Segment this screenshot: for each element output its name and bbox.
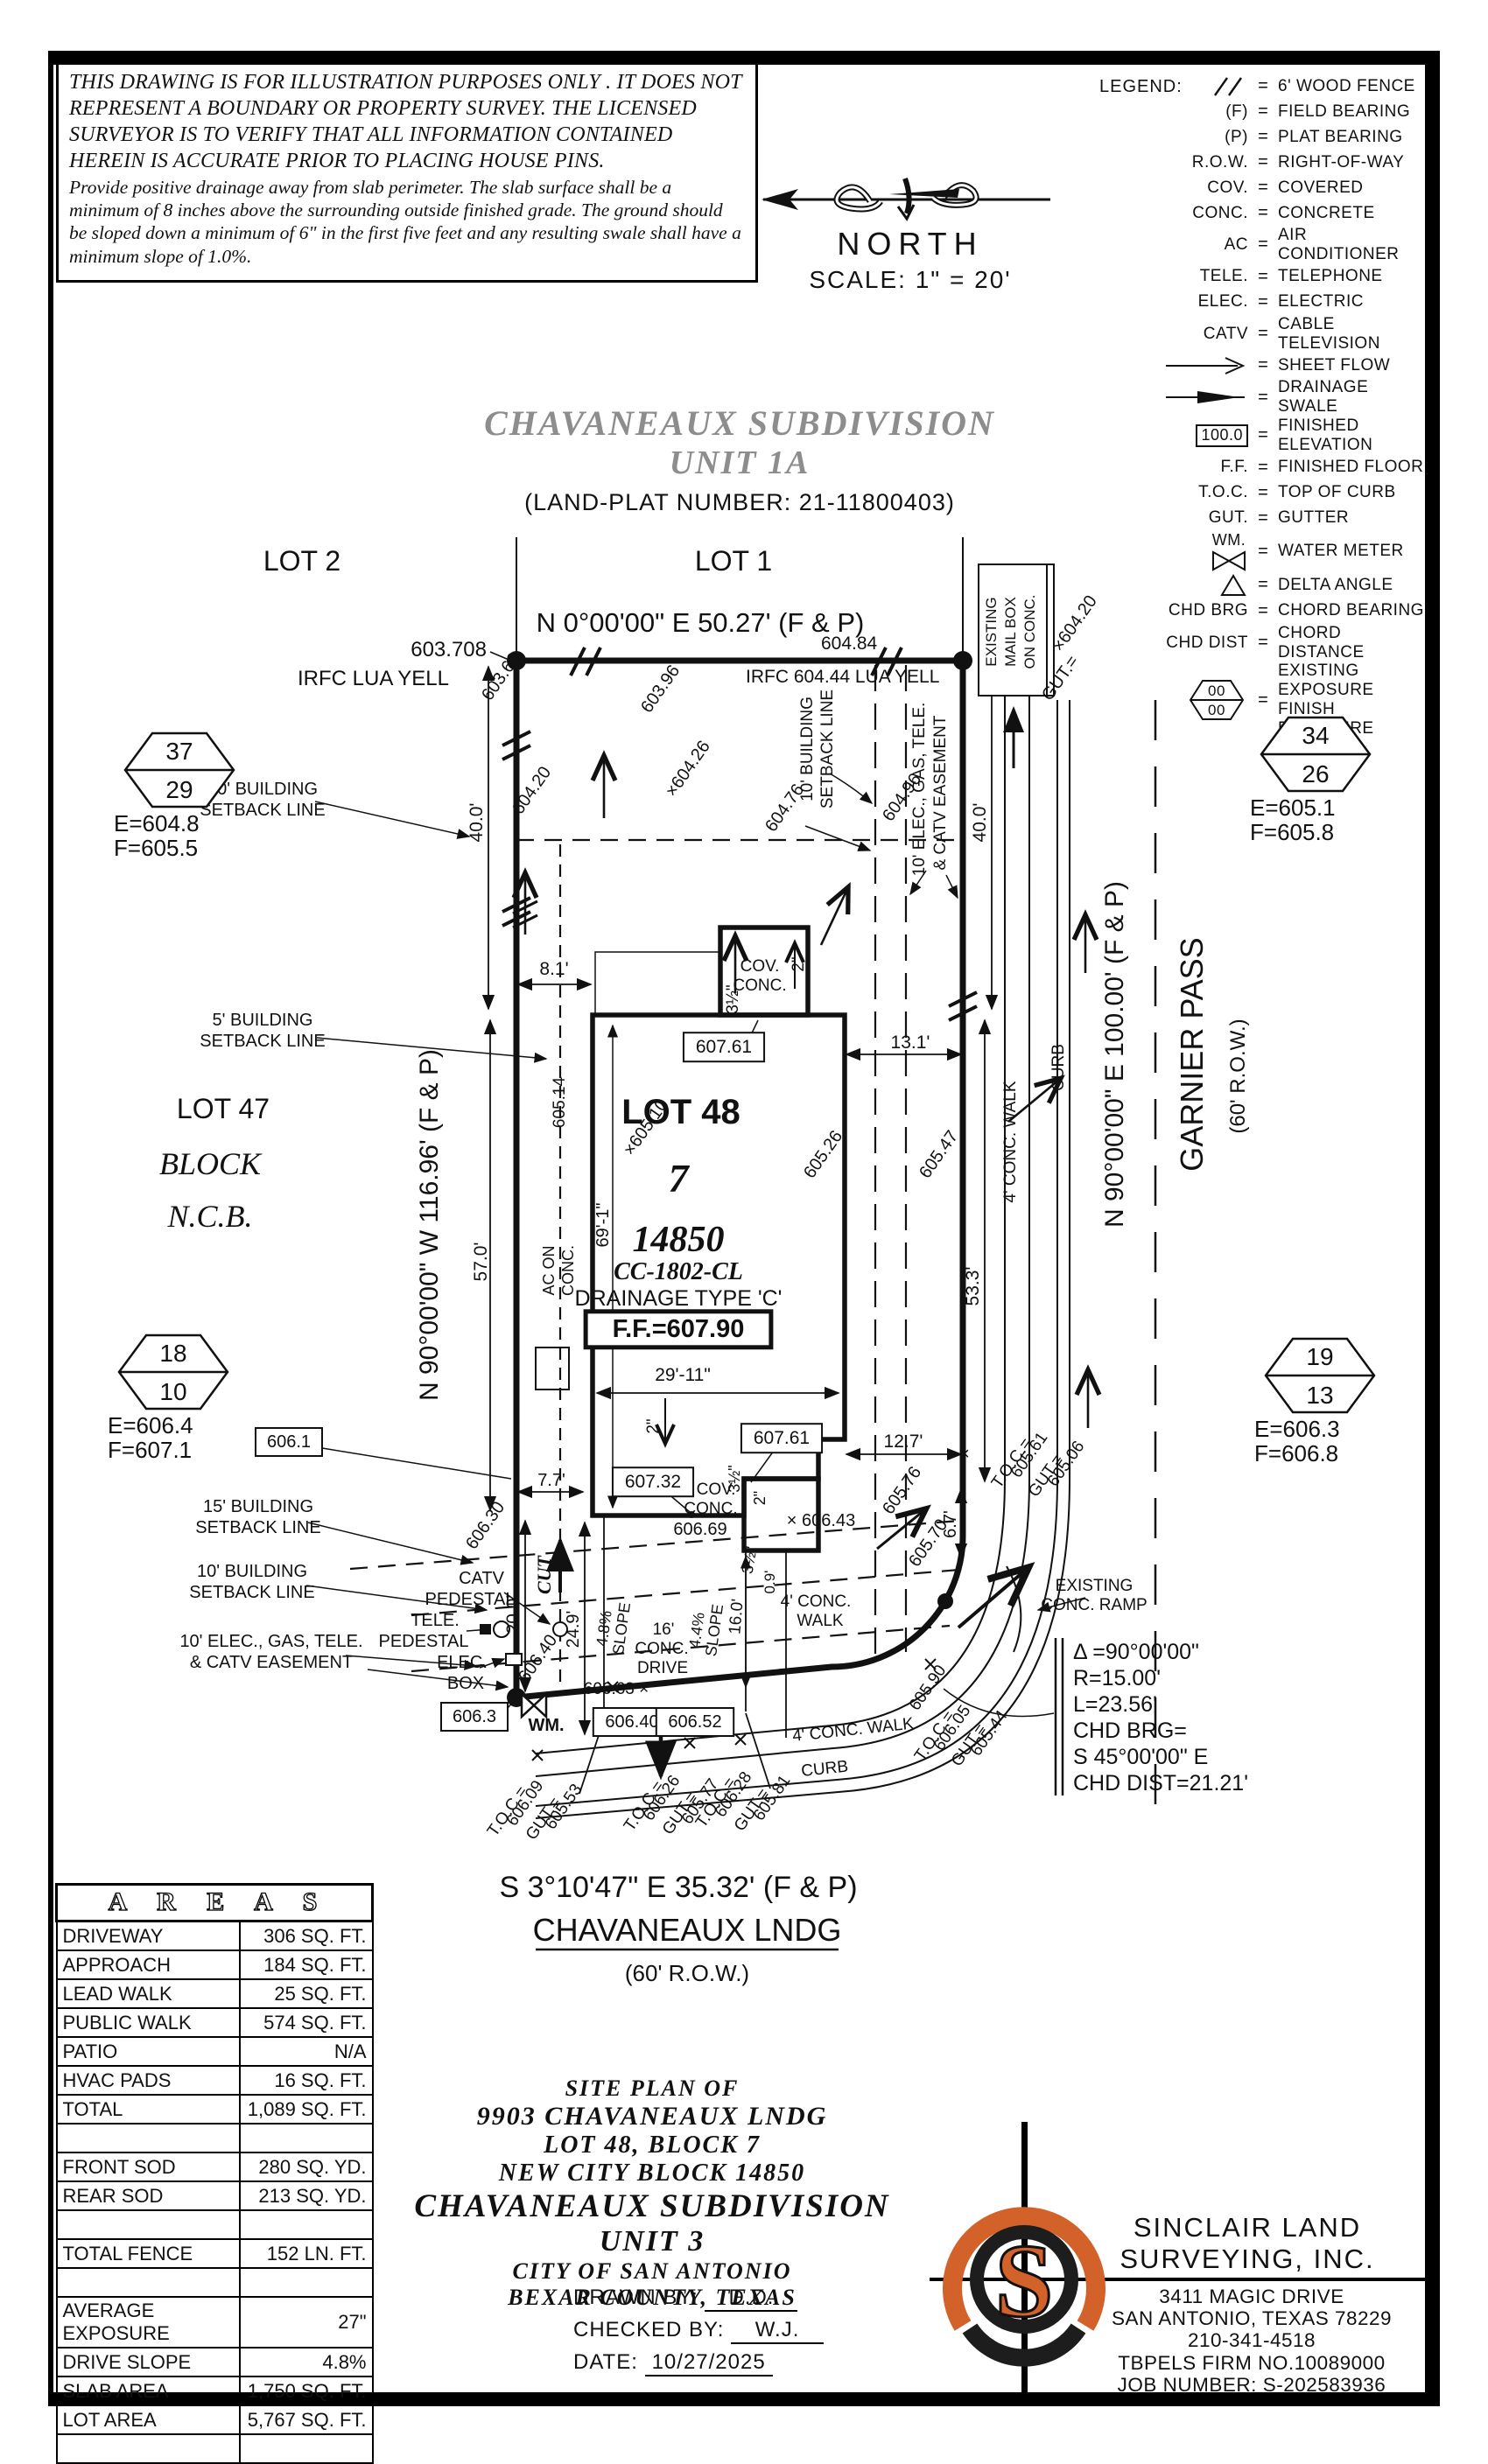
job-number: JOB NUMBER: S-202583936 — [1085, 2374, 1418, 2396]
date-label: DATE: — [573, 2350, 638, 2374]
north-label: NORTH — [758, 226, 1063, 262]
dim-24-9: 24.9' — [564, 1611, 583, 1648]
areas-row — [57, 2268, 373, 2297]
curb-bottom-label: CURB — [800, 1757, 849, 1781]
dim-3half-front: 3½" — [739, 1545, 761, 1575]
drawn-by-row: DRAWN BY: D.D. — [573, 2285, 871, 2312]
slope-44-2: SLOPE — [702, 1603, 726, 1657]
areas-row-label — [57, 2124, 240, 2152]
hex-34-26: 3426E=605.1F=605.8 — [1250, 717, 1370, 845]
legend-catv-desc: CABLE TELEVISION — [1278, 315, 1432, 353]
dim-29-11: 29'-11" — [655, 1365, 711, 1385]
dim-2in-front: 2" — [751, 1491, 769, 1505]
firm-address1: 3411 MAGIC DRIVE — [1085, 2285, 1418, 2307]
hex-19-13-existing: 19 — [1306, 1343, 1333, 1370]
legend-conc: CONC.=CONCRETE — [1164, 200, 1432, 226]
areas-row-value: 16 SQ. FT. — [240, 2066, 373, 2095]
hex-37-29-e-value: E=604.8 — [114, 810, 200, 836]
elevbox-60732: 607.32 — [625, 1472, 681, 1492]
dim-57-0: 57.0' — [471, 1242, 491, 1282]
date-value: 10/27/2025 — [645, 2350, 773, 2376]
areas-row-value — [240, 2268, 373, 2297]
areas-row-label: SLAB AREA — [57, 2376, 240, 2405]
equals-sign: = — [1248, 355, 1278, 375]
firm-name: SINCLAIR LAND SURVEYING, INC. — [1085, 2212, 1409, 2274]
titleblock-line-1: 9903 CHAVANEAUX LNDG — [407, 2102, 897, 2131]
hex-34-26-existing: 34 — [1302, 722, 1329, 749]
titleblock-line-0: SITE PLAN OF — [407, 2075, 897, 2102]
areas-row: LOT AREA5,767 SQ. FT. — [57, 2405, 373, 2434]
chavaneaux-row: (60' R.O.W.) — [625, 1960, 749, 1986]
setback15-label2: SETBACK LINE — [195, 1518, 320, 1537]
dim-13-1: 13.1' — [891, 1032, 930, 1053]
disclaimer-para1: THIS DRAWING IS FOR ILLUSTRATION PURPOSE… — [69, 69, 745, 174]
legend-elec: ELEC.=ELECTRIC — [1164, 290, 1432, 315]
titleblock-line-2: LOT 48, BLOCK 7 — [407, 2131, 897, 2159]
elec-label1: ELEC. — [437, 1653, 488, 1672]
dim-6-7: 6.7' — [941, 1510, 960, 1538]
dim-0-9: 0.9' — [762, 1571, 778, 1594]
legend-drainage-swale-desc: DRAINAGE SWALE — [1278, 378, 1432, 416]
equals-sign: = — [1248, 76, 1278, 96]
areas-row — [57, 2124, 373, 2152]
hex-18-10-e-value: E=606.4 — [108, 1412, 193, 1438]
cov-conc-front1: COV. — [697, 1480, 736, 1499]
hex-34-26-f-value: F=605.8 — [1250, 819, 1334, 845]
equals-sign: = — [1248, 178, 1278, 198]
legend-row-symbol: R.O.W. — [1164, 153, 1248, 172]
legend-ac: AC=AIR CONDITIONER — [1164, 226, 1432, 264]
finished-floor: F.F.=607.90 — [613, 1315, 745, 1343]
lot2-label: LOT 2 — [263, 545, 340, 577]
areas-row-label — [57, 2210, 240, 2239]
tele-label1: TELE. — [411, 1611, 460, 1630]
legend-row: R.O.W.=RIGHT-OF-WAY — [1164, 150, 1432, 175]
ac-label2: CONC. — [559, 1245, 577, 1296]
mailbox-line1: EXISTING — [983, 597, 1000, 666]
legend-cov: COV.=COVERED — [1164, 175, 1432, 200]
hex-37-29-f-value: F=605.5 — [114, 835, 198, 861]
areas-row-value — [240, 2124, 373, 2152]
elev-x60420-ne: ×604.20 — [1049, 592, 1101, 655]
areas-row-value: 25 SQ. FT. — [240, 1979, 373, 2008]
areas-row: APPROACH184 SQ. FT. — [57, 1950, 373, 1979]
elev-60526: 605.26 — [800, 1127, 846, 1182]
legend-toc-desc: TOP OF CURB — [1278, 483, 1432, 502]
hex-37-29-finish: 29 — [165, 776, 193, 803]
drive-label1: 16' — [653, 1620, 675, 1639]
legend-ff-desc: FINISHED FLOOR — [1278, 458, 1432, 477]
easement-l-label2: & CATV EASEMENT — [190, 1653, 353, 1672]
bearing-south: S 3°10'47" E 35.32' (F & P) — [499, 1871, 857, 1904]
north-arrow-icon — [758, 175, 1056, 224]
areas-row-label — [57, 2268, 240, 2297]
setback10l-label2: SETBACK LINE — [189, 1583, 314, 1602]
areas-row-value: 4.8% — [240, 2348, 373, 2376]
legend-drainage-swale: =DRAINAGE SWALE — [1164, 378, 1432, 416]
elev-60576: 605.76 — [879, 1463, 925, 1518]
equals-sign: = — [1248, 152, 1278, 172]
north-block: NORTH SCALE: 1" = 20' — [758, 175, 1063, 294]
equals-sign: = — [1248, 203, 1278, 223]
walk-mid-label2: WALK — [797, 1612, 843, 1630]
dim-16-0: 16.0' — [726, 1598, 747, 1634]
areas-row-label: PATIO — [57, 2037, 240, 2066]
date-row: DATE: 10/27/2025 — [573, 2350, 871, 2376]
cov-conc-rear1: COV. — [740, 957, 780, 976]
dim-53-3: 53.3' — [963, 1267, 983, 1306]
lot1-label: LOT 1 — [695, 545, 772, 577]
tele-label2: PEDESTAL — [379, 1632, 469, 1651]
elev-60547: 605.47 — [916, 1127, 962, 1182]
areas-row-label: DRIVEWAY — [57, 1921, 240, 1951]
elevbox-60640: 606.40 — [605, 1712, 658, 1732]
firm-address: 3411 MAGIC DRIVE SAN ANTONIO, TEXAS 7822… — [1085, 2285, 1418, 2396]
legend-ac-desc: AIR CONDITIONER — [1278, 226, 1432, 264]
areas-row: FRONT SOD280 SQ. YD. — [57, 2152, 373, 2181]
bearing-north-top: N 0°00'00" E 50.27' (F & P) — [537, 607, 865, 638]
walk-right-label: 4' CONC. WALK — [1001, 1081, 1020, 1202]
drainage-type: DRAINAGE TYPE 'C' — [575, 1286, 783, 1311]
street-chavaneaux: CHAVANEAUX LNDG — [533, 1912, 842, 1948]
subdivision-unit: UNIT 1A — [483, 444, 996, 482]
hex-19-13: 1913E=606.3F=606.8 — [1254, 1339, 1374, 1466]
irfc-right: IRFC 604.44 LUA YELL — [746, 667, 939, 687]
bearing-east: N 90°00'00" E 100.00' (F & P) — [1100, 881, 1129, 1228]
elevbox-60761-a: 607.61 — [696, 1037, 752, 1057]
areas-row-label: FRONT SOD — [57, 2152, 240, 2181]
legend-fence: =6' WOOD FENCE — [1164, 73, 1432, 99]
ncb-number: 14850 — [633, 1220, 725, 1260]
legend-conc-desc: CONCRETE — [1278, 204, 1432, 223]
survey-sheet: { "colors": {"accent":"#D2622A","title_g… — [0, 0, 1488, 2450]
x-mark-right: × — [959, 1445, 970, 1464]
equals-sign: = — [1248, 234, 1278, 255]
equals-sign: = — [1248, 292, 1278, 312]
curb-right-label: CURB — [1049, 1044, 1068, 1091]
setback20-label2: SETBACK LINE — [200, 801, 325, 820]
wm-label: WM. — [528, 1716, 564, 1735]
elec-label2: BOX — [447, 1674, 484, 1693]
legend-tele-desc: TELEPHONE — [1278, 267, 1432, 286]
hex-18-10-existing: 18 — [159, 1340, 186, 1367]
areas-row-value: 574 SQ. FT. — [240, 2008, 373, 2037]
areas-title: A R E A S — [57, 1885, 373, 1921]
areas-row-value: 280 SQ. YD. — [240, 2152, 373, 2181]
garnier-row: (60' R.O.W.) — [1226, 1018, 1250, 1133]
legend-ac-symbol: AC — [1164, 235, 1248, 255]
catv-label1: CATV — [459, 1569, 505, 1588]
equals-sign: = — [1248, 425, 1278, 445]
equals-sign: = — [1248, 388, 1278, 408]
areas-row-label: LOT AREA — [57, 2405, 240, 2434]
mailbox-line2: MAIL BOX — [1002, 597, 1019, 667]
areas-row-label: REAR SOD — [57, 2181, 240, 2210]
walk-mid-label1: 4' CONC. — [781, 1592, 852, 1611]
areas-row — [57, 2210, 373, 2239]
areas-row-label: TOTAL FENCE — [57, 2239, 240, 2268]
areas-row: PATION/A — [57, 2037, 373, 2066]
legend-tele: TELE.=TELEPHONE — [1164, 264, 1432, 290]
dim-7-7: 7.7' — [537, 1471, 565, 1490]
firm-name-line1: SINCLAIR LAND — [1085, 2212, 1409, 2243]
areas-row — [57, 2434, 373, 2463]
equals-sign: = — [1248, 324, 1278, 344]
titleblock-lines: SITE PLAN OF9903 CHAVANEAUX LNDGLOT 48, … — [407, 2075, 897, 2311]
equals-sign: = — [1248, 267, 1278, 287]
areas-row-label: TOTAL — [57, 2095, 240, 2124]
slope-48-2: SLOPE — [609, 1601, 634, 1655]
setback15-label1: 15' BUILDING — [203, 1497, 313, 1516]
dim-2in-mid: 2" — [644, 1418, 663, 1433]
checked-by-value: W.J. — [731, 2318, 824, 2344]
mailbox-line3: ON CONC. — [1021, 595, 1038, 669]
bearing-west: N 90°00'00" W 116.96' (F & P) — [415, 1049, 444, 1401]
firm-number: TBPELS FIRM NO.10089000 — [1085, 2352, 1418, 2374]
setback10r-label2: SETBACK LINE — [818, 689, 837, 808]
legend-elec-desc: ELECTRIC — [1278, 292, 1432, 311]
areas-row-value: 1,750 SQ. FT. — [240, 2376, 373, 2405]
sheet: THIS DRAWING IS FOR ILLUSTRATION PURPOSE… — [0, 0, 1488, 2450]
titleblock-line-4: CHAVANEAUX SUBDIVISION — [407, 2187, 897, 2225]
legend-catv-symbol: CATV — [1164, 325, 1248, 344]
areas-row: TOTAL1,089 SQ. FT. — [57, 2095, 373, 2124]
curve-chd-brg-label: CHD BRG= — [1073, 1718, 1187, 1743]
areas-row: PUBLIC WALK574 SQ. FT. — [57, 2008, 373, 2037]
dim-69-1: 69'-1" — [593, 1203, 613, 1248]
legend-fence-desc: 6' WOOD FENCE — [1278, 77, 1432, 96]
legend-field-bearing-symbol: (F) — [1164, 102, 1248, 122]
firm-address2: SAN ANTONIO, TEXAS 78229 — [1085, 2307, 1418, 2329]
legend-ff-symbol: F.F. — [1164, 458, 1248, 477]
elev-60590: 605.90 — [906, 1662, 951, 1714]
areas-row: TOTAL FENCE152 LN. FT. — [57, 2239, 373, 2268]
legend-drainage-swale-symbol — [1164, 388, 1248, 407]
street-garnier: GARNIER PASS — [1174, 937, 1210, 1171]
legend-ff: F.F.=FINISHED FLOOR — [1164, 455, 1432, 480]
areas-row: SLAB AREA1,750 SQ. FT. — [57, 2376, 373, 2405]
easement-r-label2: & CATV EASEMENT — [931, 715, 950, 870]
elevbox-60761-b: 607.61 — [754, 1428, 810, 1448]
dim-12-7: 12.7' — [884, 1431, 923, 1452]
cut-label: CUT — [533, 1554, 555, 1594]
areas-row: LEAD WALK25 SQ. FT. — [57, 1979, 373, 2008]
areas-row-value: 184 SQ. FT. — [240, 1950, 373, 1979]
checked-by-row: CHECKED BY: W.J. — [573, 2318, 871, 2344]
block-label: BLOCK — [159, 1146, 263, 1181]
legend-finished-elevation: 100.0=FINISHED ELEVATION — [1164, 416, 1432, 455]
elev-60669: 606.69 — [673, 1520, 726, 1539]
elev-60630: 606.30 — [462, 1498, 509, 1553]
areas-row: HVAC PADS16 SQ. FT. — [57, 2066, 373, 2095]
legend-catv: CATV=CABLE TELEVISION — [1164, 315, 1432, 353]
elev-x60643: × 606.43 — [787, 1511, 855, 1530]
setback5-label2: SETBACK LINE — [200, 1032, 325, 1051]
legend-cov-symbol: COV. — [1164, 178, 1248, 198]
plan-labels: LOT 2LOT 1N 0°00'00" E 50.27' (F & P)603… — [108, 545, 1374, 1986]
curve-chd-dist: CHD DIST=21.21' — [1073, 1771, 1248, 1795]
titleblock-line-6: CITY OF SAN ANTONIO — [407, 2258, 897, 2285]
elev-603708: 603.708 — [411, 638, 487, 661]
equals-sign: = — [1248, 458, 1278, 478]
equals-sign: = — [1248, 101, 1278, 122]
areas-row-label: AVERAGE EXPOSURE — [57, 2297, 240, 2348]
areas-row-label — [57, 2434, 240, 2463]
irfc-left: IRFC LUA YELL — [298, 667, 449, 690]
legend-plat-bearing-symbol: (P) — [1164, 128, 1248, 147]
legend-sheet-flow-symbol — [1164, 356, 1248, 375]
setback5-label1: 5' BUILDING — [213, 1011, 313, 1030]
legend-cov-desc: COVERED — [1278, 178, 1432, 198]
lot47-label: LOT 47 — [177, 1093, 270, 1124]
hex-18-10-finish: 10 — [159, 1378, 186, 1405]
hex-19-13-e-value: E=606.3 — [1254, 1416, 1340, 1442]
elevbox-6063: 606.3 — [453, 1707, 496, 1726]
easement-r-label1: 10' ELEC., GAS, TELE. — [910, 703, 929, 877]
areas-row-value: 306 SQ. FT. — [240, 1921, 373, 1951]
areas-row-label: DRIVE SLOPE — [57, 2348, 240, 2376]
curve-delta: Δ =90°00'00" — [1073, 1640, 1199, 1664]
legend-finished-elevation-symbol: 100.0 — [1164, 424, 1248, 447]
areas-row-value — [240, 2210, 373, 2239]
land-plat-number: (LAND-PLAT NUMBER: 21-11800403) — [483, 489, 996, 516]
areas-row-label: PUBLIC WALK — [57, 2008, 240, 2037]
setback10l-label1: 10' BUILDING — [197, 1562, 307, 1581]
titleblock-line-5: UNIT 3 — [407, 2225, 897, 2258]
drawn-by-label: DRAWN BY: — [573, 2285, 698, 2309]
areas-row-value: 1,089 SQ. FT. — [240, 2095, 373, 2124]
legend-field-bearing-desc: FIELD BEARING — [1278, 102, 1432, 122]
walk-bottom-label: 4' CONC. WALK — [791, 1715, 915, 1746]
legend-fence-symbol — [1164, 75, 1248, 98]
curve-radius: R=15.00' — [1073, 1666, 1161, 1690]
titleblock: SITE PLAN OF9903 CHAVANEAUX LNDGLOT 48, … — [407, 2075, 897, 2311]
legend-sheet-flow: =SHEET FLOW — [1164, 353, 1432, 378]
svg-text:S: S — [995, 2222, 1054, 2339]
hex-18-10-f-value: F=607.1 — [108, 1437, 192, 1463]
elev-60396: 603.96 — [637, 661, 684, 717]
elev-60484: 604.84 — [821, 633, 878, 654]
dim-2in-rear: 2" — [790, 956, 808, 971]
cov-conc-front2: CONC. — [684, 1500, 737, 1518]
site-plan-drawing: LOT 2LOT 1N 0°00'00" E 50.27' (F & P)603… — [53, 521, 1435, 2004]
legend-sheet-flow-desc: SHEET FLOW — [1278, 356, 1432, 375]
elevbox-6061: 606.1 — [267, 1432, 311, 1452]
areas-row-label: LEAD WALK — [57, 1979, 240, 2008]
areas-row-label: HVAC PADS — [57, 2066, 240, 2095]
equals-sign: = — [1248, 483, 1278, 503]
scale-label: SCALE: 1" = 20' — [758, 266, 1063, 294]
legend-plat-bearing: (P)=PLAT BEARING — [1164, 124, 1432, 150]
areas-row-value: 5,767 SQ. FT. — [240, 2405, 373, 2434]
dim-40-left: 40.0' — [467, 803, 487, 843]
catv-label2: PEDESTAL — [425, 1590, 516, 1609]
dim-40-right: 40.0' — [970, 803, 990, 843]
curve-length: L=23.56' — [1073, 1692, 1157, 1717]
legend-elec-symbol: ELEC. — [1164, 292, 1248, 311]
areas-row-value: 27" — [240, 2297, 373, 2348]
ncb-label: N.C.B. — [166, 1199, 252, 1234]
firm-phone: 210-341-4518 — [1085, 2329, 1418, 2351]
setback10r-label1: 10' BUILDING — [798, 696, 817, 801]
titleblock-line-3: NEW CITY BLOCK 14850 — [407, 2159, 897, 2187]
areas-row-value: 213 SQ. YD. — [240, 2181, 373, 2210]
elev-60514: 605.14 — [551, 1077, 569, 1129]
hex-19-13-finish: 13 — [1306, 1382, 1333, 1409]
ac-label1: AC ON — [540, 1245, 558, 1295]
ramp-label2: CONC. RAMP — [1041, 1596, 1147, 1614]
legend-conc-symbol: CONC. — [1164, 204, 1248, 223]
elev-x60426: ×604.26 — [662, 738, 714, 801]
drive-label3: DRIVE — [637, 1659, 688, 1677]
elev-60663: 606.63 × — [584, 1680, 649, 1698]
areas-row: REAR SOD213 SQ. YD. — [57, 2181, 373, 2210]
plat-header: CHAVANEAUX SUBDIVISION UNIT 1A (LAND-PLA… — [483, 402, 996, 516]
dim-8-1: 8.1' — [539, 959, 568, 979]
titleblock-credits: DRAWN BY: D.D. CHECKED BY: W.J. DATE: 10… — [573, 2285, 871, 2383]
drawn-by-value: D.D. — [705, 2285, 797, 2312]
legend-row-desc: RIGHT-OF-WAY — [1278, 153, 1432, 172]
firm-name-line2: SURVEYING, INC. — [1085, 2243, 1409, 2275]
areas-row: DRIVEWAY306 SQ. FT. — [57, 1921, 373, 1951]
subdivision-title: CHAVANEAUX SUBDIVISION — [483, 402, 996, 444]
elevbox-60652: 606.52 — [668, 1712, 721, 1732]
legend-toc: T.O.C.=TOP OF CURB — [1164, 480, 1432, 506]
easement-l-label1: 10' ELEC., GAS, TELE. — [179, 1632, 362, 1651]
legend-toc-symbol: T.O.C. — [1164, 483, 1248, 502]
dim-3half-rear: 3½" — [724, 984, 742, 1013]
legend-field-bearing: (F)=FIELD BEARING — [1164, 99, 1432, 124]
hex-37-29-existing: 37 — [165, 738, 193, 765]
drive-label2: CONC. — [635, 1640, 688, 1658]
curve-chd-brg: S 45°00'00" E — [1073, 1745, 1208, 1769]
legend-tele-symbol: TELE. — [1164, 267, 1248, 286]
ramp-label1: EXISTING — [1056, 1577, 1134, 1595]
hex-34-26-e-value: E=605.1 — [1250, 794, 1336, 821]
disclaimer-para2: Provide positive drainage away from slab… — [69, 176, 745, 268]
areas-row-value: 152 LN. FT. — [240, 2239, 373, 2268]
legend-finished-elevation-desc: FINISHED ELEVATION — [1278, 416, 1432, 455]
areas-table-body: DRIVEWAY306 SQ. FT.APPROACH184 SQ. FT.LE… — [57, 1921, 373, 2464]
areas-row-value: N/A — [240, 2037, 373, 2066]
hex-18-10: 1810E=606.4F=607.1 — [108, 1335, 228, 1463]
disclaimer-note: THIS DRAWING IS FOR ILLUSTRATION PURPOSE… — [56, 59, 758, 283]
plan-code: CC-1802-CL — [614, 1258, 743, 1285]
legend-plat-bearing-desc: PLAT BEARING — [1278, 128, 1432, 147]
areas-row-value — [240, 2434, 373, 2463]
checked-by-label: CHECKED BY: — [573, 2318, 724, 2341]
hex-34-26-finish: 26 — [1302, 760, 1329, 787]
areas-row-label: APPROACH — [57, 1950, 240, 1979]
areas-row: DRIVE SLOPE4.8% — [57, 2348, 373, 2376]
areas-table: A R E A S DRIVEWAY306 SQ. FT.APPROACH184… — [55, 1883, 374, 2464]
hex-19-13-f-value: F=606.8 — [1254, 1440, 1338, 1466]
block-number: 7 — [669, 1156, 691, 1200]
equals-sign: = — [1248, 127, 1278, 147]
areas-row: AVERAGE EXPOSURE27" — [57, 2297, 373, 2348]
